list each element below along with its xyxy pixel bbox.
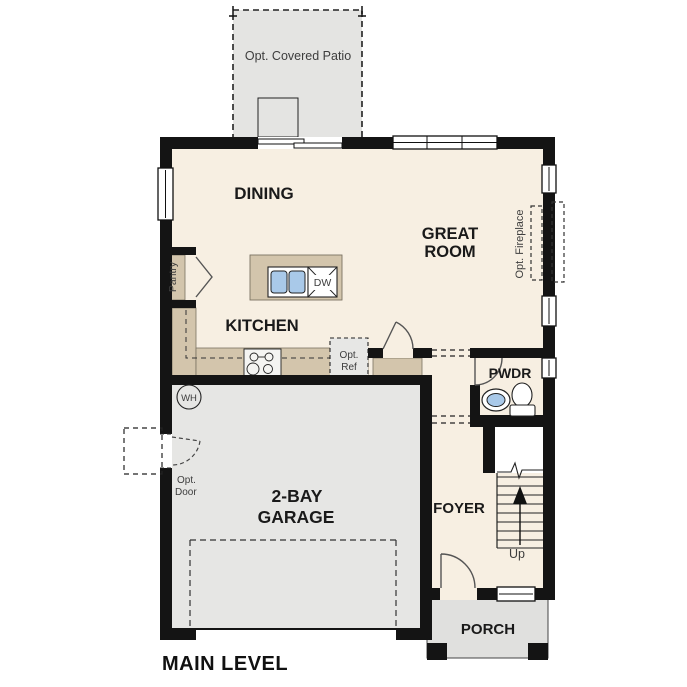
patio-area: Opt. Covered Patio xyxy=(229,6,366,140)
opt-door-label-line2: Door xyxy=(175,487,197,498)
floor-plan-page: Opt. Covered Patio DW Opt. Ref xyxy=(0,0,687,687)
sliding-door-panel xyxy=(294,143,342,148)
foyer-label: FOYER xyxy=(433,500,485,517)
counter-left xyxy=(172,308,196,377)
fireplace-label: Opt. Fireplace xyxy=(514,209,526,278)
front-door-opening xyxy=(440,588,477,600)
stairwell-open-area xyxy=(495,420,543,473)
opt-door-label-line1: Opt. xyxy=(177,475,196,486)
floor-plan-drawing: Opt. Covered Patio DW Opt. Ref xyxy=(0,0,687,687)
garage-label-line2: GARAGE xyxy=(258,507,335,527)
wall-pantry-top xyxy=(160,247,196,255)
stove xyxy=(244,349,281,376)
powder-sink-basin xyxy=(487,394,505,407)
kitchen-label: KITCHEN xyxy=(225,317,298,335)
wall-powder-west xyxy=(470,385,480,420)
great-room-label-line2: ROOM xyxy=(424,243,475,261)
garage-label-line1: 2-BAY xyxy=(272,486,323,506)
pantry-label: Pantry xyxy=(167,261,179,292)
opt-door-stoop-dashed xyxy=(124,428,162,474)
patio-step xyxy=(258,98,298,137)
dishwasher-label: DW xyxy=(314,277,332,289)
page-title: MAIN LEVEL xyxy=(162,653,288,675)
porch-label: PORCH xyxy=(461,621,515,638)
wall-powder-bottom xyxy=(470,415,555,427)
wall-powder-top xyxy=(470,348,555,358)
patio-label: Opt. Covered Patio xyxy=(245,49,351,63)
porch-post-right xyxy=(528,643,548,660)
sink-basin-left xyxy=(271,271,287,293)
stairs-up-label: Up xyxy=(509,547,525,561)
water-heater: WH xyxy=(177,385,201,409)
wall-garage-foyer xyxy=(420,375,432,640)
wall-garage-bottom-left xyxy=(160,628,196,640)
porch-post-left xyxy=(427,643,447,660)
powder-label: PWDR xyxy=(489,365,532,381)
great-room-label-line1: GREAT xyxy=(422,225,479,243)
opt-ref-label-line1: Opt. xyxy=(340,350,359,361)
wall-garage-top xyxy=(160,375,432,385)
hall-bench xyxy=(373,358,422,377)
wall-stair-west xyxy=(483,415,495,473)
toilet-bowl xyxy=(512,383,532,407)
wall-pantry-bottom xyxy=(160,300,196,308)
sink-basin-right xyxy=(289,271,305,293)
hall-door-opening xyxy=(383,348,413,358)
opt-ref-label-line2: Ref xyxy=(341,362,357,373)
wall-garage-bottom-right xyxy=(396,628,432,640)
toilet-tank xyxy=(510,405,535,416)
dining-label: DINING xyxy=(234,184,294,203)
water-heater-label: WH xyxy=(181,393,197,404)
